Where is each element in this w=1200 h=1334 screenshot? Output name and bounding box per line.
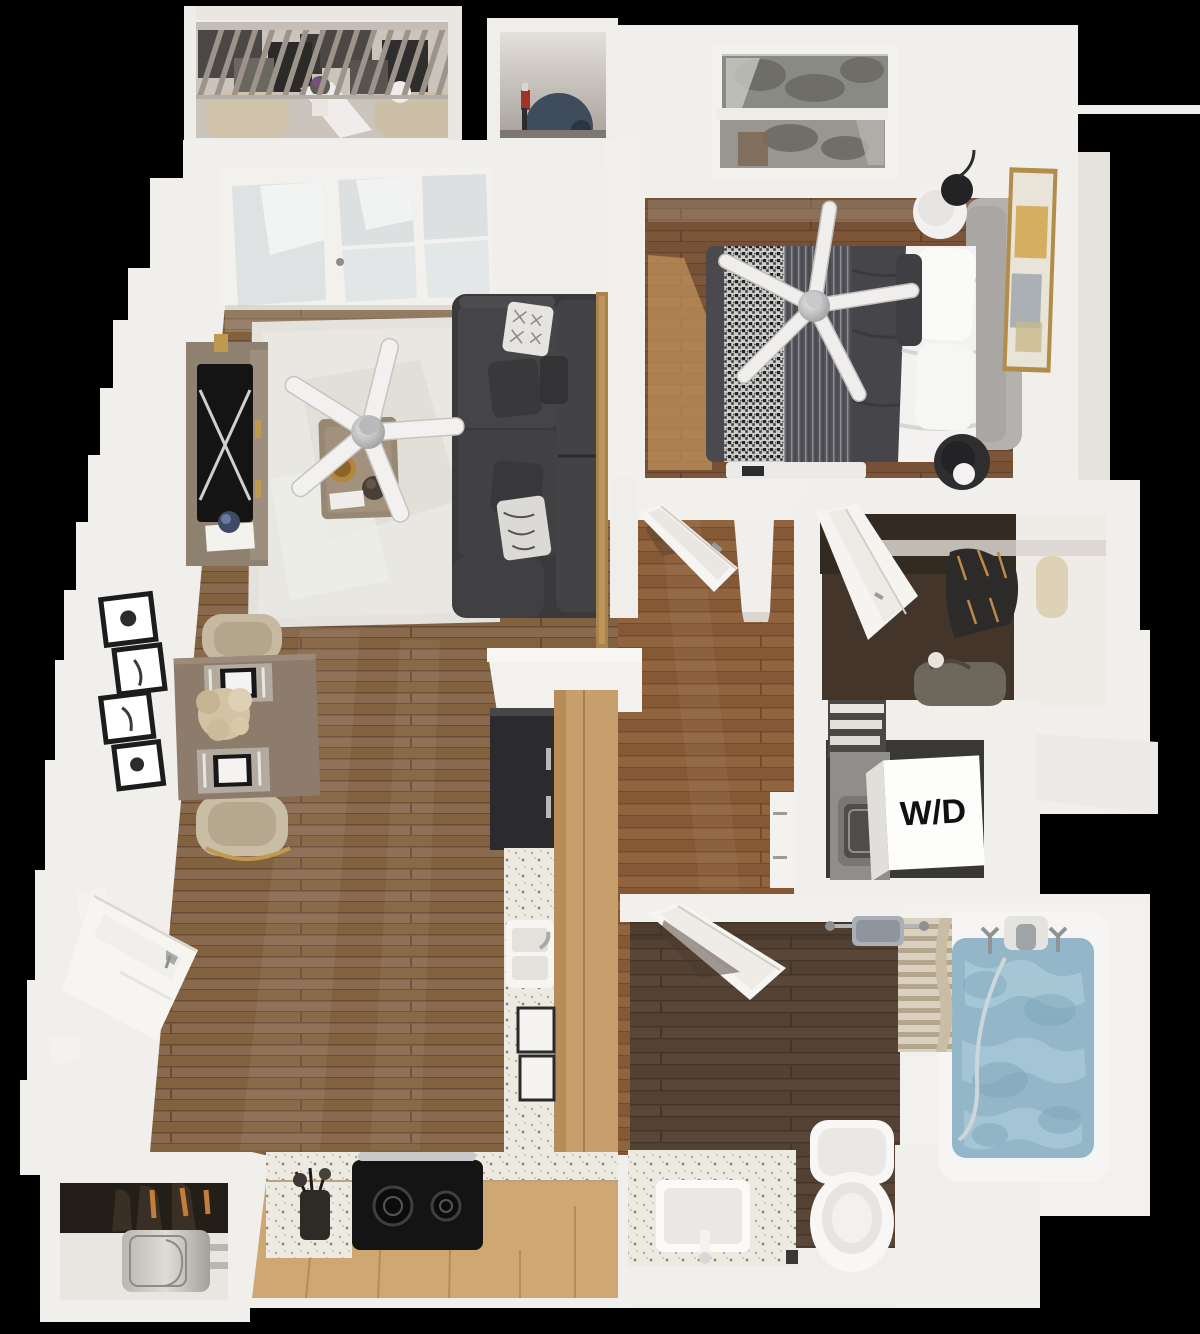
svg-text:W/D: W/D xyxy=(899,792,967,833)
